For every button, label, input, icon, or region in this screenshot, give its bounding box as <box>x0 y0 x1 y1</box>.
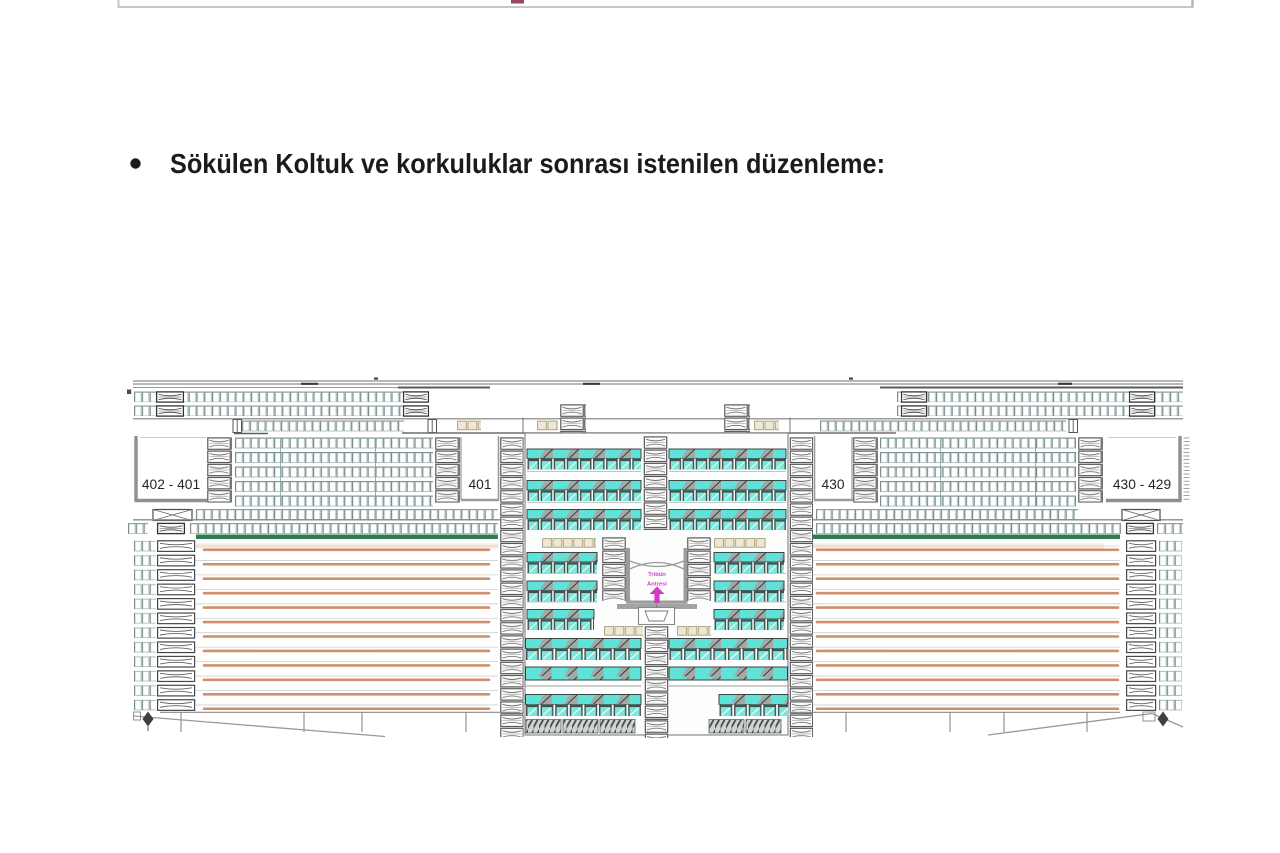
svg-text:Antresi: Antresi <box>647 582 667 588</box>
svg-text:Sökülen Koltuk ve korkuluklar: Sökülen Koltuk ve korkuluklar sonrası is… <box>170 148 885 179</box>
svg-text:430: 430 <box>821 477 844 492</box>
svg-text:Tribün: Tribün <box>648 572 666 578</box>
svg-text:430 - 429: 430 - 429 <box>1113 477 1172 492</box>
svg-text:402 - 401: 402 - 401 <box>142 477 200 492</box>
svg-text:401: 401 <box>468 477 491 492</box>
